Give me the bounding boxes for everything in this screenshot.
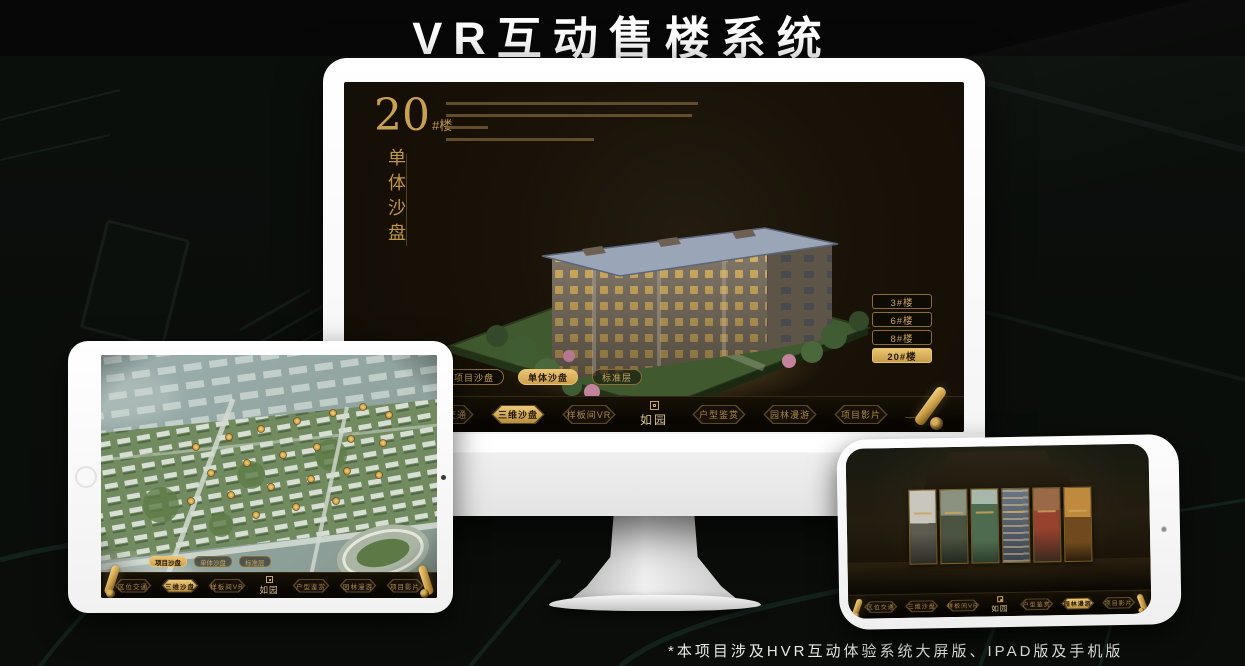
nav-item-3d-sandbox[interactable]: 三维沙盘 bbox=[160, 579, 200, 593]
seal-icon bbox=[266, 576, 273, 583]
monitor-subtabs: 项目沙盘 单体沙盘 标准层 bbox=[444, 369, 642, 385]
scroll-ornament-icon[interactable] bbox=[422, 565, 430, 595]
nav-item-location[interactable]: 区位交通 bbox=[863, 600, 899, 613]
headline-divider bbox=[406, 154, 407, 246]
nav-item-project-film[interactable]: 项目影片 bbox=[385, 579, 425, 593]
nav-item-floorplans[interactable]: 户型鉴赏 bbox=[690, 405, 748, 424]
scroll-ornament-icon[interactable] bbox=[1139, 594, 1145, 612]
floor-button-group: 3#楼 6#楼 8#楼 20#楼 bbox=[872, 294, 932, 363]
section-title-vertical: 单体沙盘 bbox=[382, 148, 408, 258]
seal-icon bbox=[997, 596, 1003, 602]
subtab-single-sandbox[interactable]: 单体沙盘 bbox=[518, 369, 578, 385]
nav-item-garden-roam[interactable]: 园林漫游 bbox=[1060, 597, 1096, 610]
tablet-device: 项目沙盘 单体沙盘 标准层 区位交通 三维沙盘 样板间VR 如园 户型鉴赏 园林… bbox=[68, 341, 453, 613]
floor-button-8[interactable]: 8#楼 bbox=[872, 330, 932, 345]
camera-icon bbox=[1161, 526, 1167, 532]
tablet-nav-bar: 区位交通 三维沙盘 样板间VR 如园 户型鉴赏 园林漫游 项目影片 bbox=[101, 572, 437, 598]
floor-button-6[interactable]: 6#楼 bbox=[872, 312, 932, 327]
floor-button-20[interactable]: 20#楼 bbox=[872, 348, 932, 363]
subtab-standard-floor[interactable]: 标准层 bbox=[239, 556, 271, 567]
nav-item-floorplans[interactable]: 户型鉴赏 bbox=[291, 579, 331, 593]
camera-icon bbox=[441, 475, 446, 480]
floor-button-3[interactable]: 3#楼 bbox=[872, 294, 932, 309]
tablet-screen: 项目沙盘 单体沙盘 标准层 区位交通 三维沙盘 样板间VR 如园 户型鉴赏 园林… bbox=[101, 355, 437, 598]
subtab-project-sandbox[interactable]: 项目沙盘 bbox=[149, 556, 187, 567]
gallery-panel[interactable] bbox=[939, 489, 968, 564]
stage: VR互动售楼系统 20#楼 单体沙盘 bbox=[0, 0, 1245, 666]
gallery-panel[interactable] bbox=[1063, 487, 1092, 562]
nav-item-garden-roam[interactable]: 园林漫游 bbox=[338, 579, 378, 593]
scene-gallery bbox=[908, 487, 1092, 565]
seal-icon bbox=[650, 401, 659, 410]
nav-item-3d-sandbox[interactable]: 三维沙盘 bbox=[489, 405, 547, 424]
phone-screen: 区位交通 三维沙盘 样板间VR 如园 户型鉴赏 园林漫游 项目影片 bbox=[846, 444, 1152, 619]
phone-nav-bar: 区位交通 三维沙盘 样板间VR 如园 户型鉴赏 园林漫游 项目影片 bbox=[848, 590, 1151, 619]
nav-item-showroom-vr[interactable]: 样板间VR bbox=[945, 599, 981, 612]
phone-device: 区位交通 三维沙盘 样板间VR 如园 户型鉴赏 园林漫游 项目影片 bbox=[836, 434, 1181, 630]
home-button[interactable] bbox=[75, 466, 97, 488]
brand-logo: 如园 bbox=[254, 576, 284, 596]
nav-item-project-film[interactable]: 项目影片 bbox=[1101, 596, 1137, 609]
gallery-panel[interactable] bbox=[970, 488, 999, 563]
subtab-project-sandbox[interactable]: 项目沙盘 bbox=[444, 369, 504, 385]
footnote-text: *本项目涉及HVR互动体验系统大屏版、IPAD版及手机版 bbox=[668, 640, 1123, 661]
nav-item-garden-roam[interactable]: 园林漫游 bbox=[761, 405, 819, 424]
nav-item-3d-sandbox[interactable]: 三维沙盘 bbox=[904, 600, 940, 613]
tablet-subtabs: 项目沙盘 单体沙盘 标准层 bbox=[149, 556, 271, 567]
nav-item-location[interactable]: 区位交通 bbox=[113, 579, 153, 593]
gallery-panel[interactable] bbox=[908, 489, 937, 564]
subtab-single-sandbox[interactable]: 单体沙盘 bbox=[194, 556, 232, 567]
description-text-lines bbox=[446, 102, 698, 150]
sandbox-3d-view[interactable] bbox=[432, 154, 882, 432]
gallery-panel[interactable] bbox=[1032, 487, 1061, 562]
scroll-ornament-icon[interactable] bbox=[108, 565, 116, 595]
scroll-ornament-icon[interactable] bbox=[925, 384, 936, 428]
monitor-base bbox=[549, 595, 761, 611]
gallery-panel[interactable] bbox=[1001, 488, 1030, 563]
nav-item-project-film[interactable]: 项目影片 bbox=[832, 405, 890, 424]
nav-item-showroom-vr[interactable]: 样板间VR bbox=[560, 405, 618, 424]
scroll-ornament-icon[interactable] bbox=[854, 599, 860, 617]
brand-logo: 如园 bbox=[986, 595, 1014, 613]
subtab-standard-floor[interactable]: 标准层 bbox=[592, 369, 642, 385]
nav-item-floorplans[interactable]: 户型鉴赏 bbox=[1019, 598, 1055, 611]
brand-logo: 如园 bbox=[631, 401, 677, 428]
building-number: 20 bbox=[374, 90, 430, 141]
nav-item-showroom-vr[interactable]: 样板间VR bbox=[207, 579, 247, 593]
